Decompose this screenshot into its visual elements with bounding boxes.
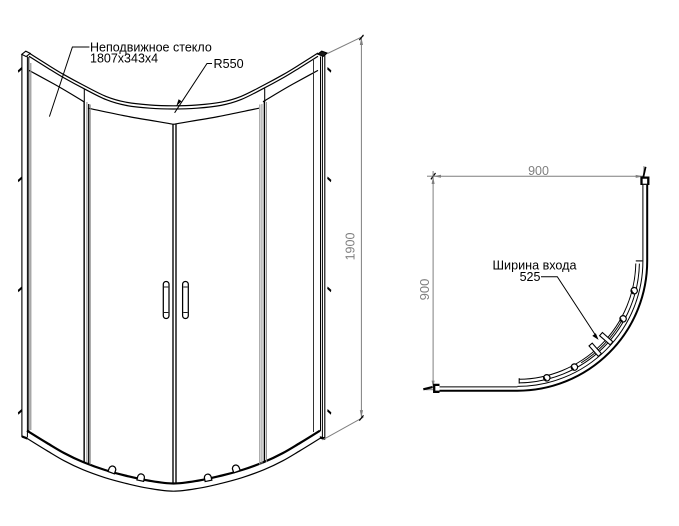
svg-text:900: 900	[528, 164, 549, 178]
svg-text:525: 525	[520, 270, 541, 284]
svg-text:R550: R550	[214, 57, 244, 71]
svg-text:1900: 1900	[344, 233, 358, 261]
svg-text:1807х343х4: 1807х343х4	[90, 51, 158, 65]
svg-text:900: 900	[417, 279, 432, 301]
